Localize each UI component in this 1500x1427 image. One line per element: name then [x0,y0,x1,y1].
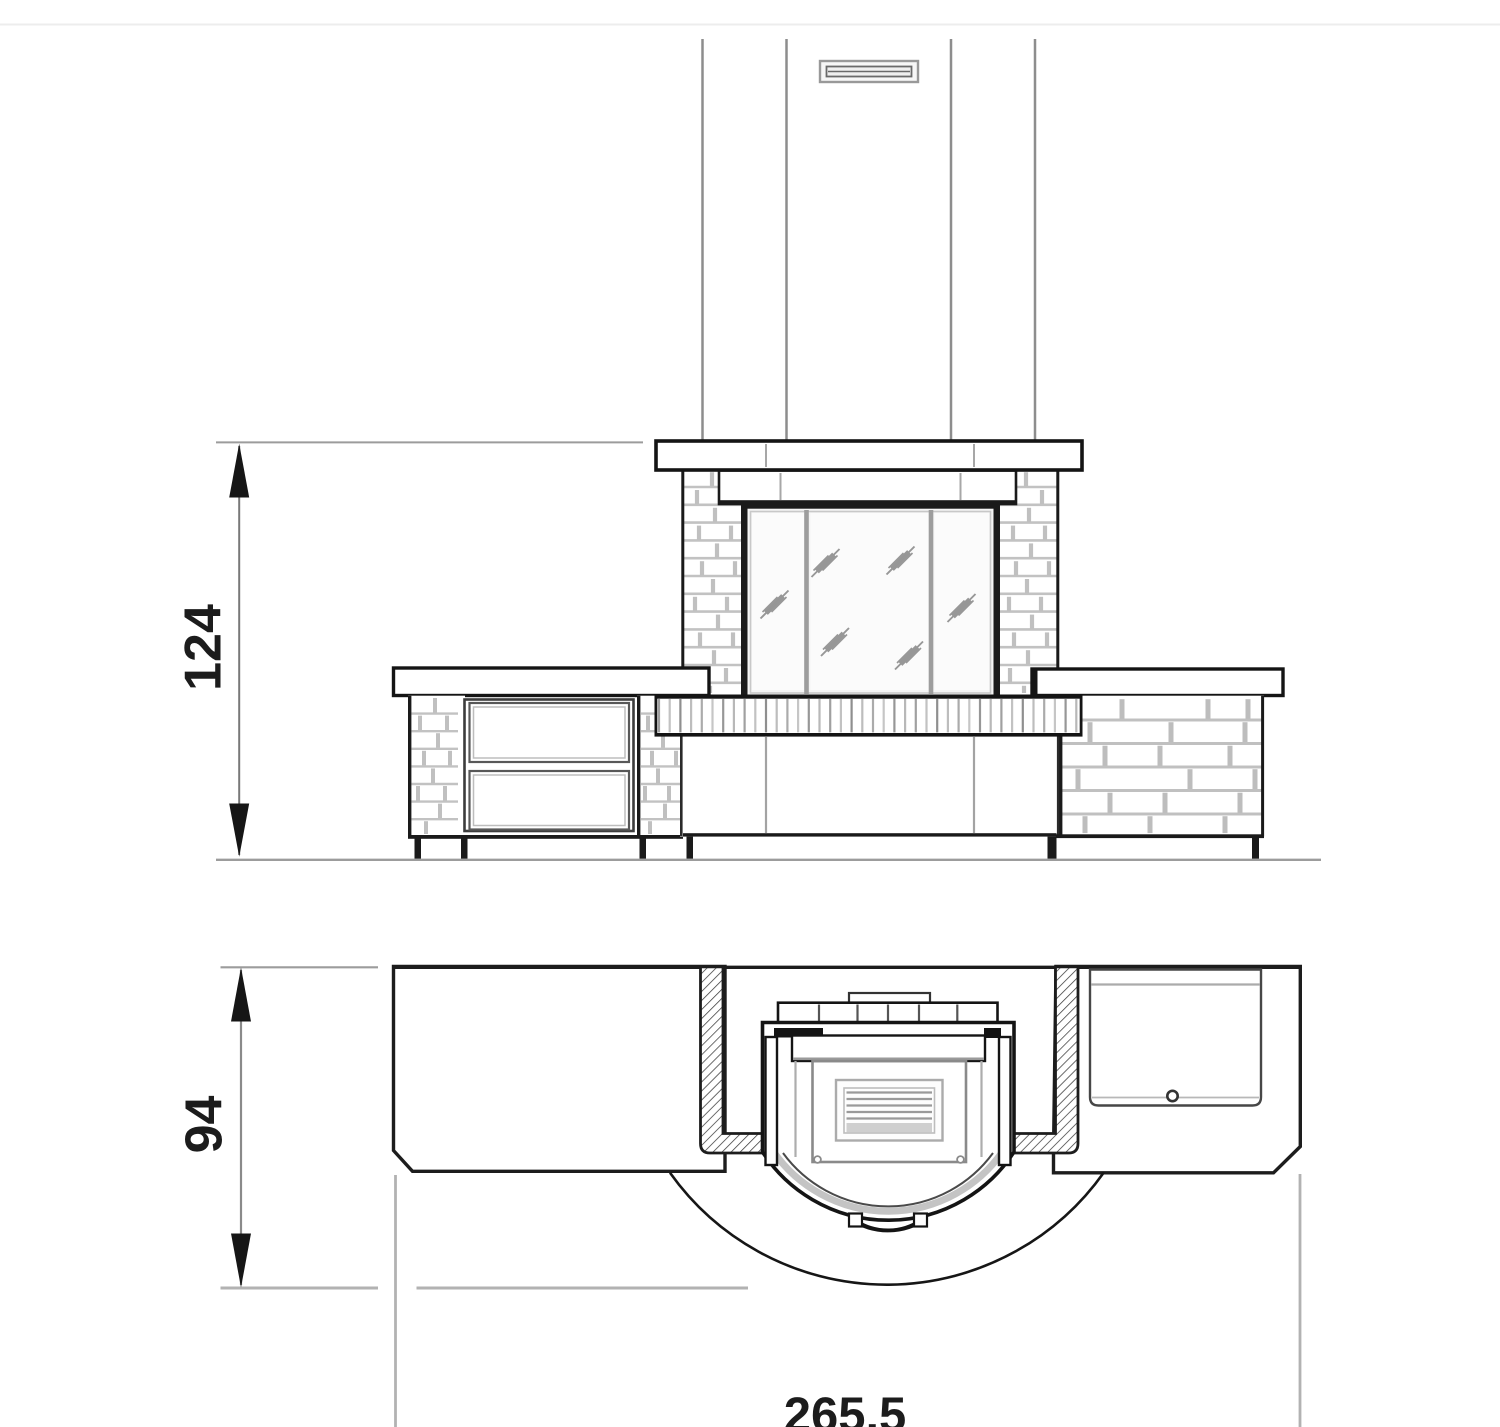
svg-text:94: 94 [176,1096,234,1154]
svg-text:124: 124 [175,604,233,691]
svg-text:265.5: 265.5 [784,1389,907,1427]
